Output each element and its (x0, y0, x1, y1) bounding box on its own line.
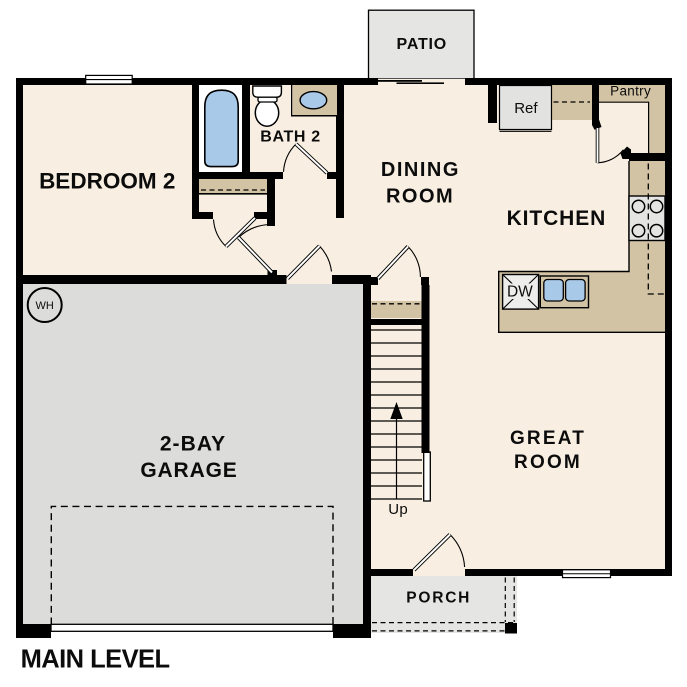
svg-text:DINING: DINING (381, 159, 460, 181)
svg-text:PATIO: PATIO (397, 36, 448, 53)
svg-text:KITCHEN: KITCHEN (507, 207, 607, 230)
svg-text:Ref: Ref (514, 100, 538, 117)
svg-text:PORCH: PORCH (406, 590, 471, 607)
svg-text:MAIN LEVEL: MAIN LEVEL (21, 646, 170, 674)
svg-text:GARAGE: GARAGE (140, 459, 237, 482)
svg-text:ROOM: ROOM (386, 185, 454, 207)
svg-text:ROOM: ROOM (514, 452, 582, 473)
svg-text:2-BAY: 2-BAY (160, 433, 226, 456)
svg-text:BEDROOM 2: BEDROOM 2 (39, 168, 175, 193)
svg-text:GREAT: GREAT (510, 428, 586, 449)
svg-text:Up: Up (388, 501, 408, 518)
svg-text:WH: WH (36, 300, 54, 312)
svg-text:Pantry: Pantry (610, 83, 651, 98)
svg-text:DW: DW (507, 283, 533, 300)
svg-text:BATH 2: BATH 2 (260, 128, 321, 145)
